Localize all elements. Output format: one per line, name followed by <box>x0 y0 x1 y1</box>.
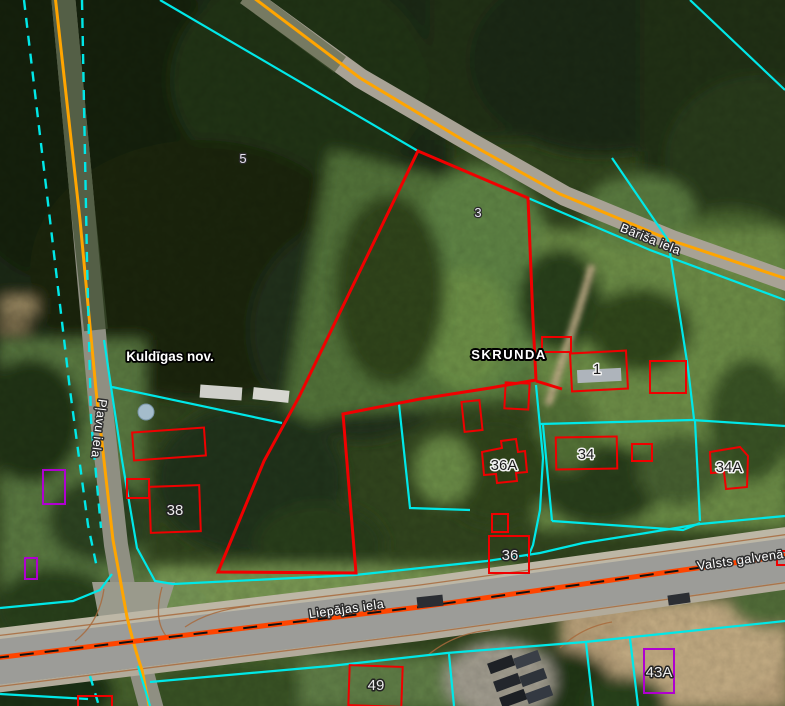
address-label-36: 36 <box>502 547 519 564</box>
cadastral-map: 5 3 Kuldīgas nov. SKRUNDA 1 34 34A 36A 3… <box>0 0 785 706</box>
address-label-38: 38 <box>167 502 184 519</box>
address-label-49: 49 <box>368 677 385 694</box>
address-label-1: 1 <box>593 361 601 378</box>
address-label-34a: 34A <box>716 459 743 476</box>
address-label-34: 34 <box>578 446 595 463</box>
parcel-label-5: 5 <box>239 151 246 166</box>
map-canvas[interactable]: 5 3 Kuldīgas nov. SKRUNDA 1 34 34A 36A 3… <box>0 0 785 706</box>
address-label-43a: 43A <box>646 664 673 681</box>
address-label-36a: 36A <box>491 457 518 474</box>
municipality-label: Kuldīgas nov. <box>126 349 214 364</box>
parcel-label-3: 3 <box>474 205 481 220</box>
round-tank <box>138 404 154 420</box>
town-label: SKRUNDA <box>471 347 547 362</box>
